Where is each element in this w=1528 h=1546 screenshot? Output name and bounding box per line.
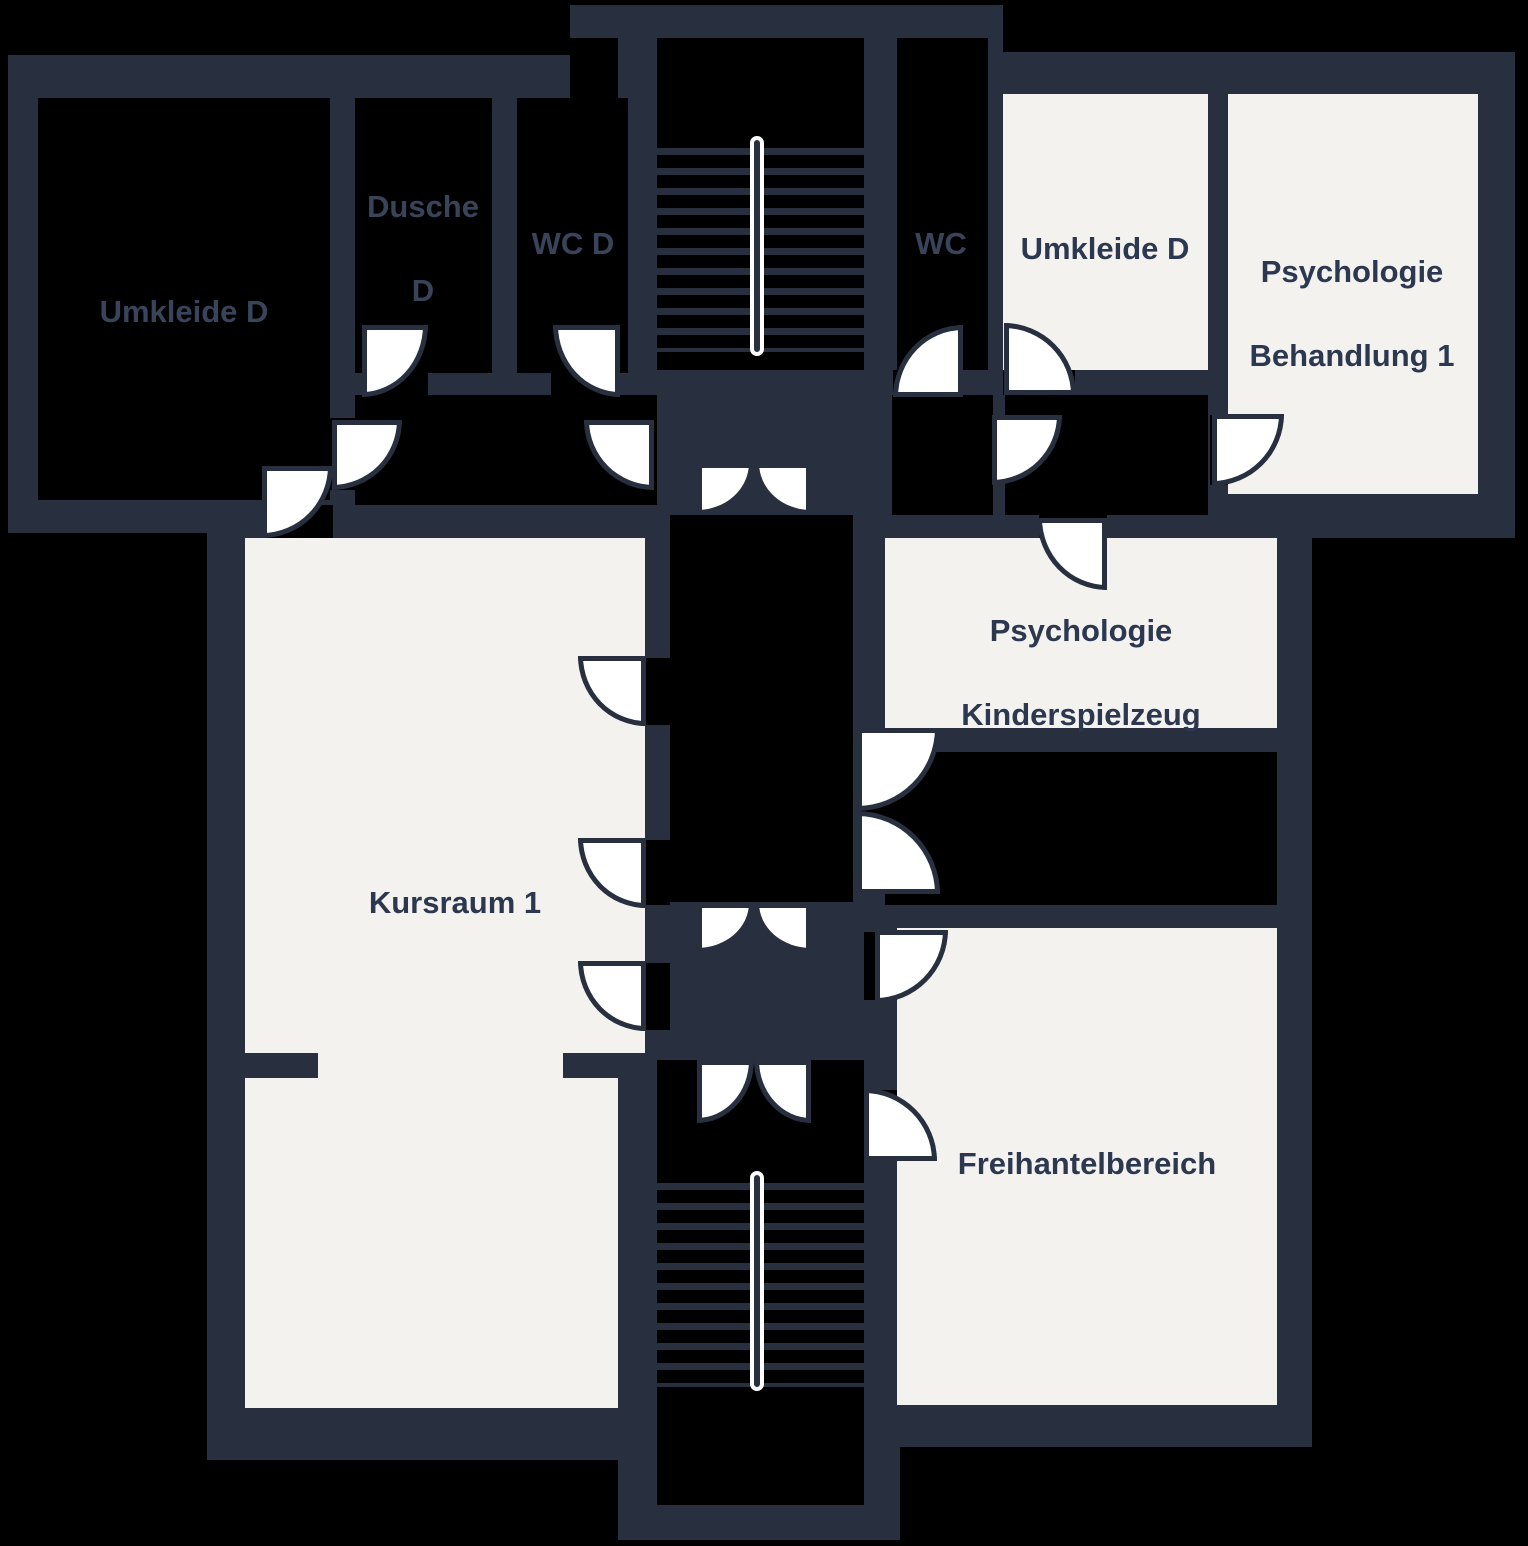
label-line: Freihantelbereich xyxy=(958,1146,1216,1181)
room-storage-dark xyxy=(885,752,1277,905)
label-line: Psychologie xyxy=(990,613,1173,648)
room-label-psychologie-kinderspielzeug: Psychologie Kinderspielzeug xyxy=(921,568,1241,736)
stair-rail-bottom xyxy=(750,1171,764,1391)
label-line: Behandlung 1 xyxy=(1250,338,1455,373)
room-label-umkleide-d-right: Umkleide D xyxy=(985,186,1225,270)
label-line: D xyxy=(412,273,434,308)
label-line: Umkleide D xyxy=(100,294,269,329)
hallway-east xyxy=(892,395,1208,515)
door-gap xyxy=(645,658,670,725)
room-label-wc: WC xyxy=(881,181,1001,265)
room-label-umkleide-d-left: Umkleide D xyxy=(54,249,314,333)
label-line: Umkleide D xyxy=(1021,231,1190,266)
label-line: Kursraum 1 xyxy=(369,885,541,920)
notch-outside xyxy=(570,38,618,98)
door-gap xyxy=(645,840,670,905)
door-gap xyxy=(645,963,670,1030)
room-label-wc-d: WC D xyxy=(493,181,653,265)
label-line: Kinderspielzeug xyxy=(961,697,1200,732)
room-label-kursraum-1: Kursraum 1 xyxy=(335,840,575,924)
label-line: WC xyxy=(915,226,967,261)
room-kursraum-1-passage xyxy=(318,1053,563,1078)
room-label-freihantelbereich: Freihantelbereich xyxy=(927,1101,1247,1185)
floor-plan: Umkleide D Dusche D WC D WC Umkleide D P… xyxy=(0,0,1528,1546)
label-line: Dusche xyxy=(367,189,479,224)
elevator-shaft xyxy=(670,515,853,902)
room-label-psychologie-behandlung-1: Psychologie Behandlung 1 xyxy=(1212,209,1492,377)
room-kursraum-1-lower xyxy=(245,1078,618,1408)
label-line: WC D xyxy=(532,226,615,261)
label-line: Psychologie xyxy=(1261,254,1444,289)
stair-rail-top xyxy=(750,136,764,356)
